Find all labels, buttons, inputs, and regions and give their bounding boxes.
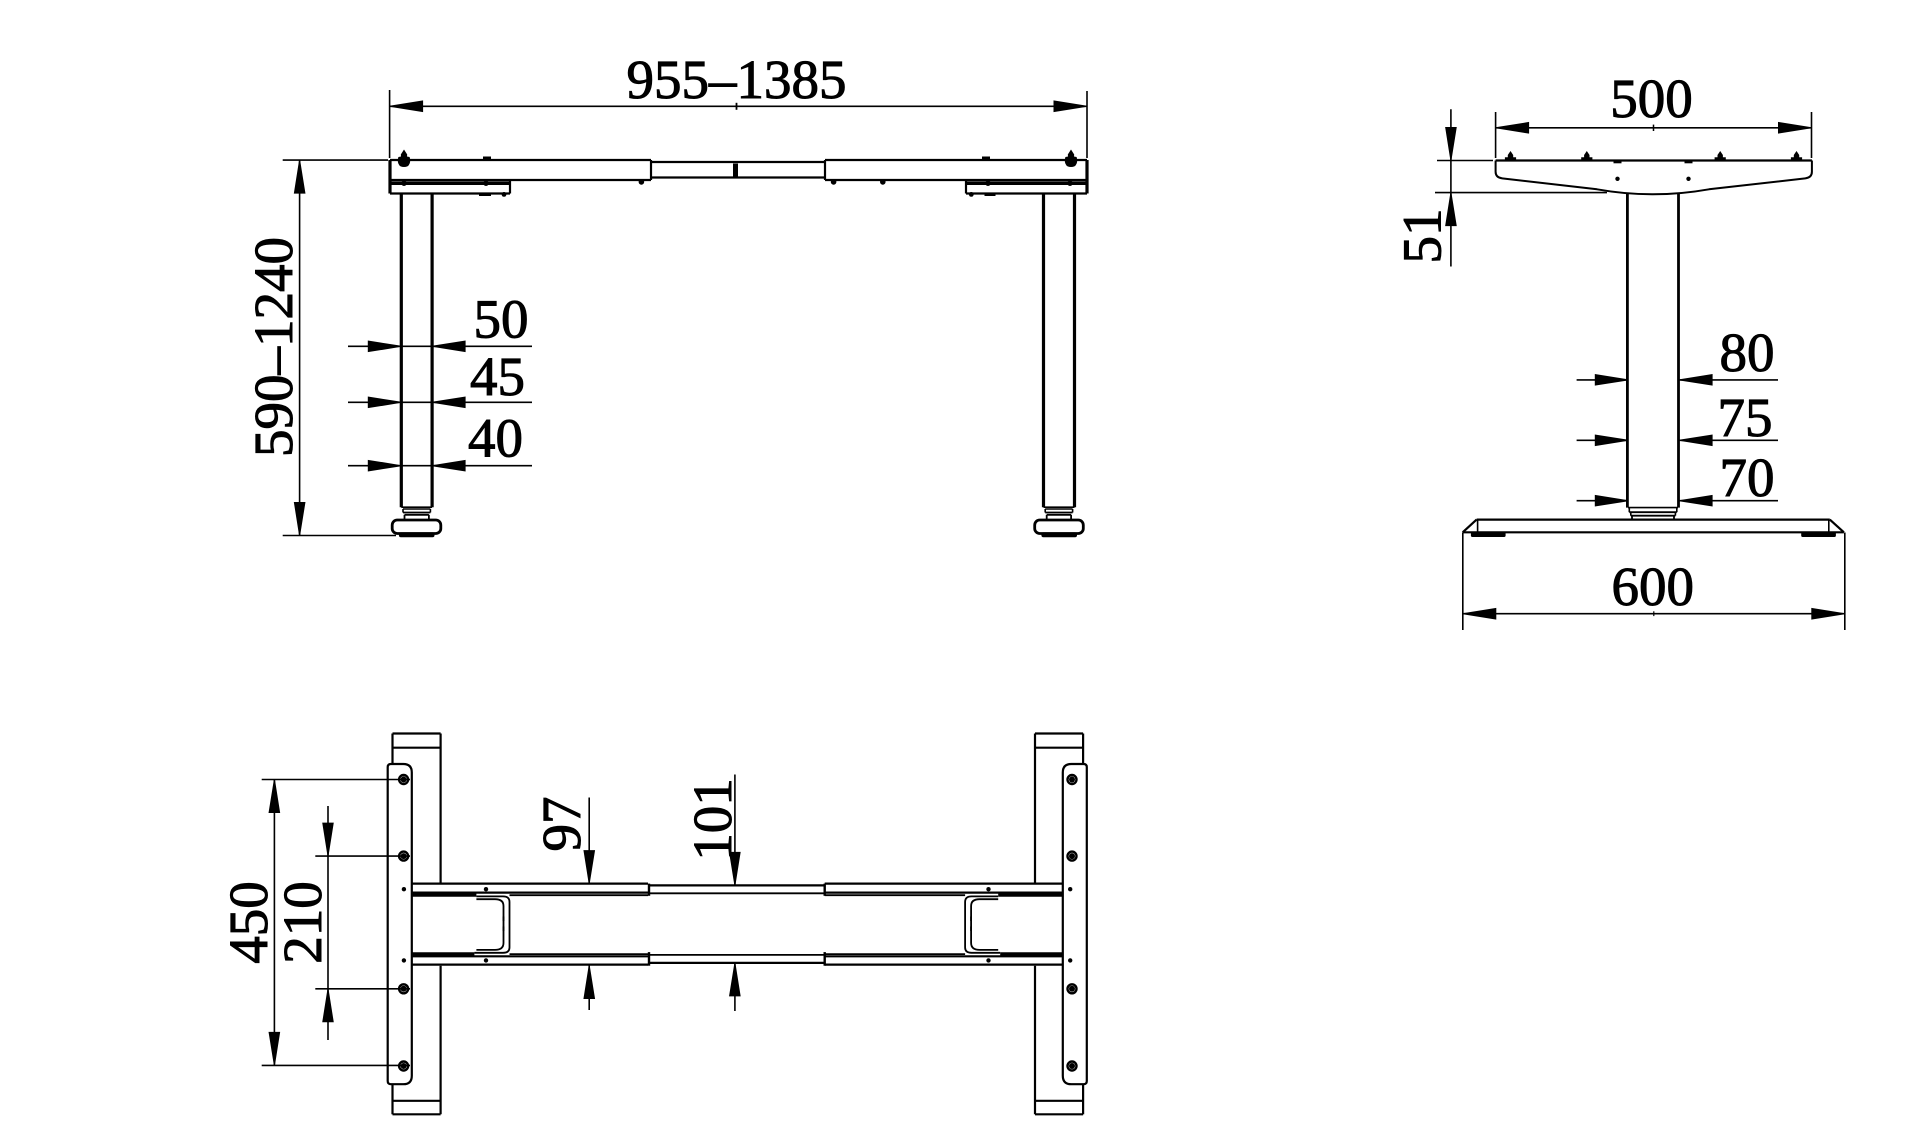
svg-text:450: 450: [218, 881, 279, 964]
svg-text:40: 40: [468, 407, 523, 468]
svg-text:80: 80: [1720, 322, 1775, 383]
svg-text:210: 210: [272, 881, 333, 964]
svg-text:500: 500: [1610, 68, 1693, 129]
svg-text:600: 600: [1611, 556, 1694, 617]
svg-text:101: 101: [682, 778, 743, 861]
svg-text:50: 50: [474, 289, 529, 350]
svg-text:955–1385: 955–1385: [627, 49, 847, 110]
svg-text:75: 75: [1718, 387, 1773, 448]
svg-text:51: 51: [1392, 209, 1453, 264]
svg-text:97: 97: [531, 797, 592, 852]
svg-text:590–1240: 590–1240: [243, 237, 304, 457]
svg-text:45: 45: [470, 346, 525, 407]
svg-text:70: 70: [1720, 447, 1775, 508]
